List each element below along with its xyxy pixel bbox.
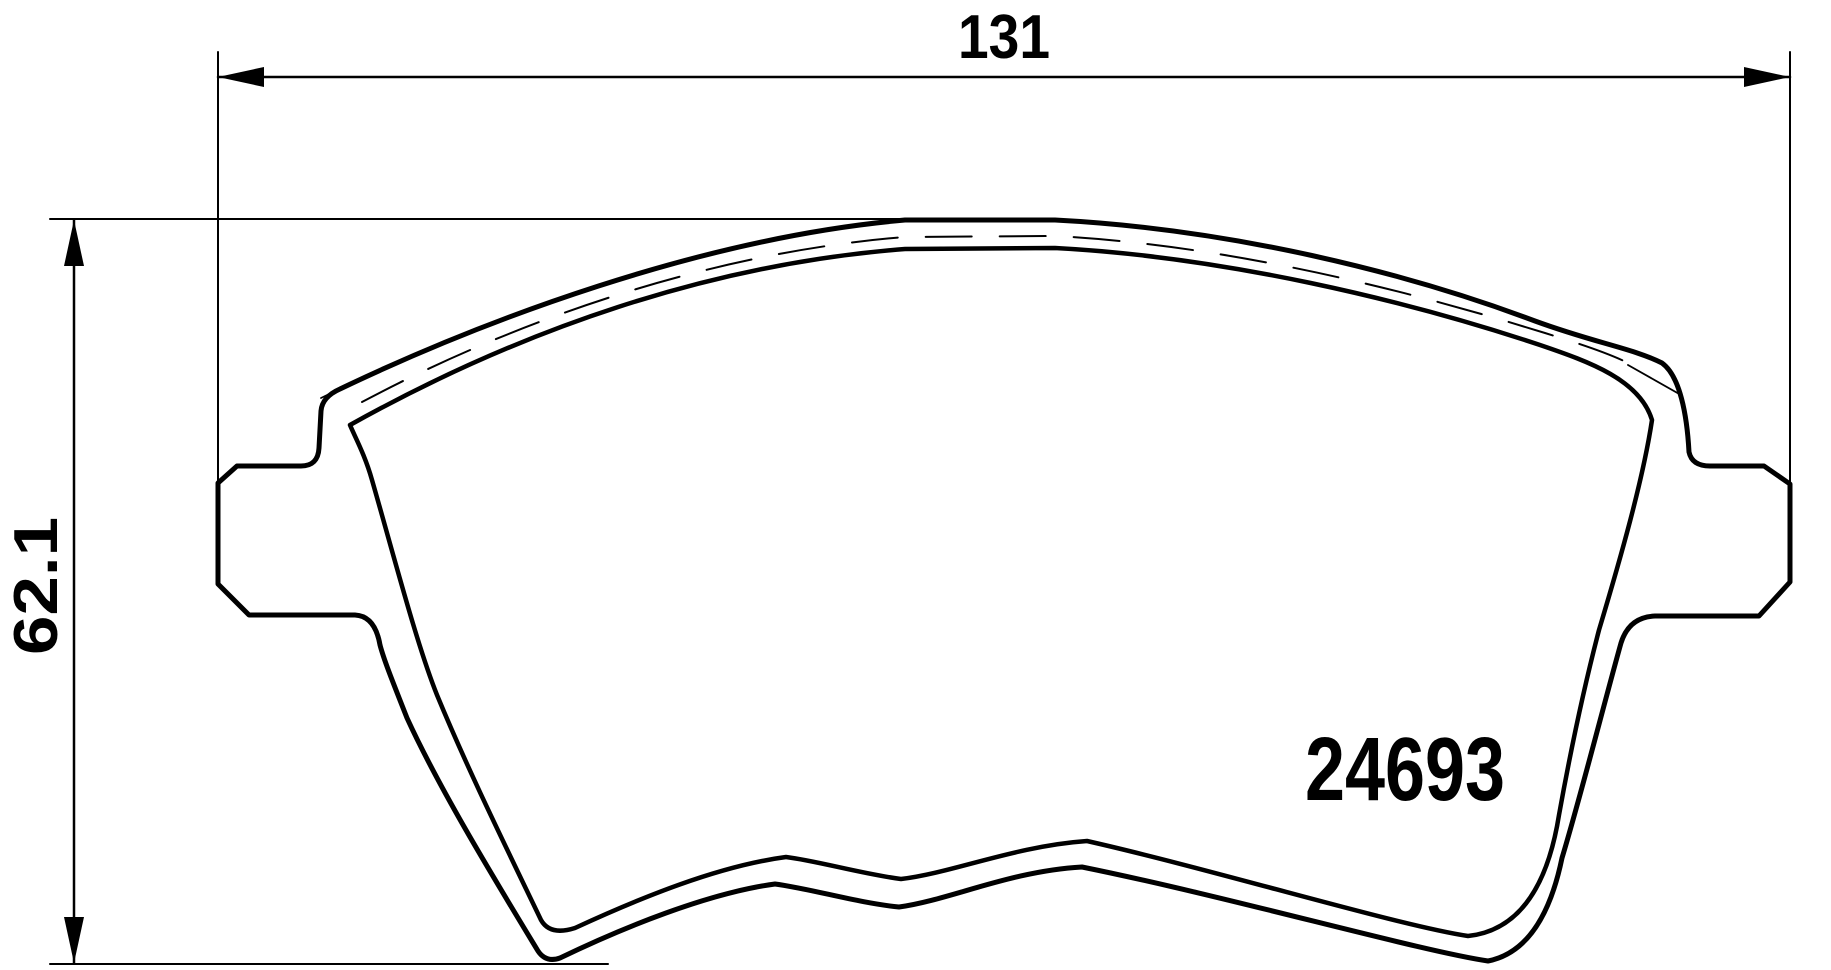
arrow-right-icon <box>1744 67 1790 87</box>
arrow-left-icon <box>218 67 264 87</box>
brake-pad-drawing: 131 62.1 24693 <box>0 0 1831 970</box>
width-dimension: 131 <box>218 3 1790 483</box>
friction-material-outline <box>350 248 1652 936</box>
chamfer-tick-left <box>321 381 356 398</box>
width-dimension-label: 131 <box>958 3 1050 72</box>
height-dimension-label: 62.1 <box>2 517 71 655</box>
technical-drawing-canvas: 131 62.1 24693 <box>0 0 1831 970</box>
part-number-label: 24693 <box>1305 720 1505 820</box>
arrow-up-icon <box>64 220 84 266</box>
height-dimension: 62.1 <box>2 219 1045 964</box>
brake-pad-backplate-outline <box>218 220 1790 961</box>
arrow-down-icon <box>64 917 84 963</box>
